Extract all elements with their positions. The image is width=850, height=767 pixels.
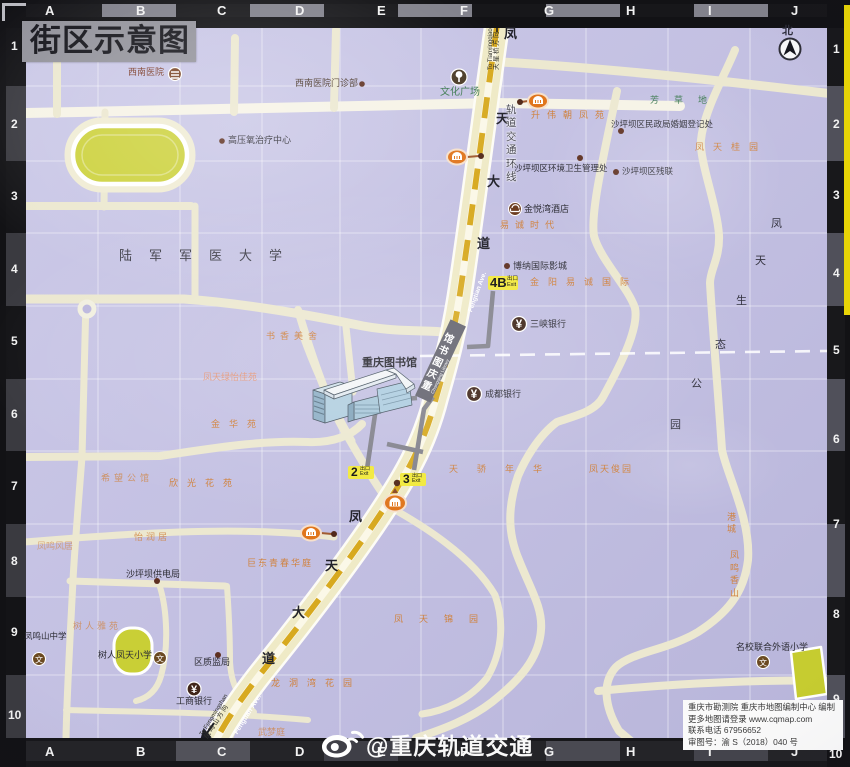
svg-text:¥: ¥: [516, 319, 523, 331]
svg-text:文: 文: [35, 655, 43, 665]
svg-text:文: 文: [156, 654, 164, 664]
svg-text:¥: ¥: [471, 389, 478, 401]
svg-text:¥: ¥: [191, 684, 198, 696]
svg-text:文: 文: [759, 658, 767, 668]
